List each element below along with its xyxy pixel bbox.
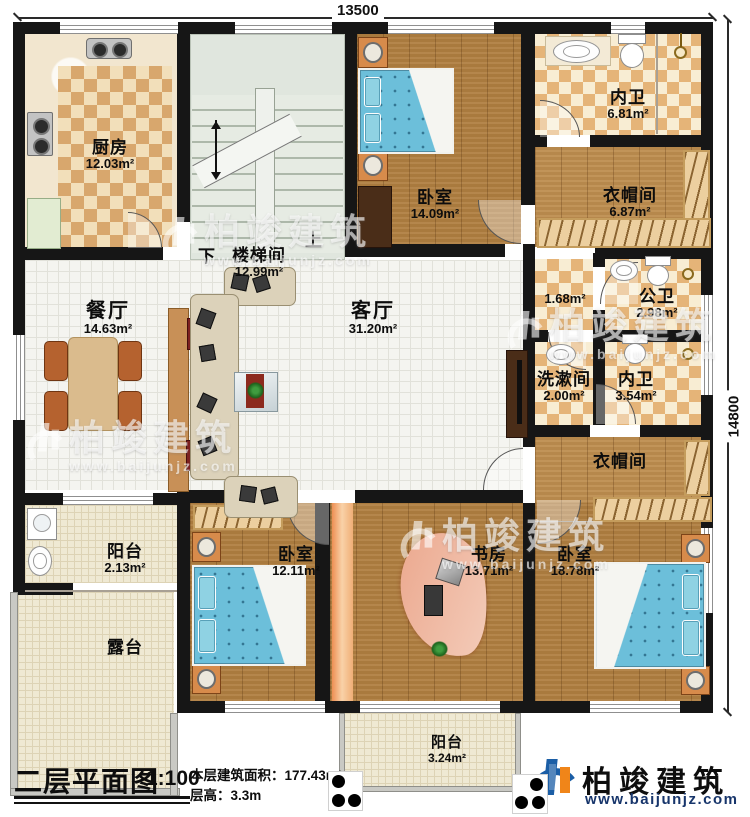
room-label-balcony-bottom: 阳台 3.24m² <box>428 735 466 765</box>
window <box>60 22 178 34</box>
sink-icon <box>610 260 638 281</box>
wall-segment <box>153 493 190 505</box>
dimension-line-right <box>727 20 729 713</box>
shower-icon <box>682 348 694 360</box>
balcony-terrace-separator <box>25 590 177 592</box>
bed-sheet-fold <box>404 70 452 152</box>
sink-icon <box>546 344 576 365</box>
stair-stringer <box>255 88 275 256</box>
window <box>701 295 713 395</box>
double-bed <box>594 562 706 669</box>
floor-area-row: 本层建筑面积：177.43m² <box>190 764 342 784</box>
dining-chair <box>118 391 142 431</box>
burner-icon <box>92 42 108 58</box>
window <box>590 701 680 713</box>
wall-segment <box>640 425 713 437</box>
room-label-bedroom-right: 卧室 18.78m² <box>551 545 599 579</box>
shower-cord <box>680 33 682 47</box>
room-label-bedroom-left: 卧室 12.11m² <box>272 545 320 579</box>
wall-segment <box>521 34 535 205</box>
wall-segment <box>13 22 25 595</box>
wall-segment <box>523 330 548 342</box>
plan-title: 二层平面图 <box>14 760 159 800</box>
burner-icon <box>33 138 50 155</box>
nightstand-lamp-icon <box>192 532 221 562</box>
floor-height-row: 层高：3.3m <box>190 784 261 804</box>
room-label-kitchen: 厨房 12.03m² <box>86 138 134 172</box>
toilet-icon <box>622 334 648 364</box>
room-label-cloak-top: 衣帽间 6.87m² <box>603 186 657 220</box>
stair-arrow-head-up <box>211 116 221 129</box>
sink-icon <box>553 40 600 63</box>
nightstand-lamp-icon <box>358 150 388 181</box>
computer-monitor-icon <box>424 585 443 616</box>
toilet-icon <box>645 256 671 286</box>
room-label-cloak-mid: 衣帽间 <box>593 452 647 471</box>
room-label-terrace: 露台 <box>107 638 143 657</box>
sofa-section <box>224 476 298 518</box>
burner-icon <box>33 118 50 135</box>
room-label-hall: 1.68m² <box>544 292 585 307</box>
window <box>225 701 325 713</box>
dining-chair <box>44 391 68 431</box>
wall-segment <box>13 493 63 505</box>
pillow <box>198 619 216 653</box>
plant-icon <box>431 641 448 657</box>
nightstand-lamp-icon <box>681 534 710 563</box>
pillow <box>198 576 216 610</box>
burner-icon <box>112 42 128 58</box>
window <box>611 22 645 34</box>
balcony-parapet <box>339 786 521 792</box>
tv-cabinet <box>358 186 392 248</box>
wall-segment <box>345 34 357 256</box>
nightstand-lamp-icon <box>358 37 388 68</box>
bed-sheet-fold <box>596 564 652 667</box>
bed-sheet-fold <box>247 567 304 664</box>
washer-drum-icon <box>33 514 51 532</box>
pillow <box>364 113 381 143</box>
pillow <box>364 77 381 107</box>
shower-icon <box>674 46 687 59</box>
wall-segment <box>523 425 590 437</box>
wall-segment <box>590 135 713 147</box>
room-label-dining: 餐厅 14.63m² <box>84 300 132 337</box>
double-bed <box>192 565 306 666</box>
toilet-icon <box>618 34 646 68</box>
dining-chair <box>44 341 68 381</box>
room-label-balcony-left: 阳台 2.13m² <box>104 542 145 576</box>
window <box>388 22 494 34</box>
laundry-sink-icon <box>28 546 52 576</box>
stair-arrow-head-down <box>211 172 221 185</box>
wall-segment <box>523 503 535 701</box>
stamp-marker <box>512 774 548 814</box>
title-underline <box>14 796 190 799</box>
window <box>360 701 500 713</box>
dining-table <box>68 337 118 431</box>
nightstand-lamp-icon <box>192 664 221 694</box>
room-label-bath-mid: 内卫 3.54m² <box>615 370 656 404</box>
wardrobe <box>537 218 711 248</box>
double-bed <box>358 68 454 154</box>
room-label-public-bath: 公卫 2.98m² <box>636 287 677 321</box>
stamp-marker <box>328 771 363 811</box>
room-label-study: 书房 13.71m² <box>465 545 513 579</box>
stair-up-label: 上 <box>305 231 323 250</box>
floor-plan: 厨房 12.03m² 楼梯间 12.99m² 下 上 卧室 14.09m² 内卫… <box>0 0 750 817</box>
cushion <box>199 344 217 362</box>
room-label-stairwell: 楼梯间 12.99m² <box>232 246 286 280</box>
dimension-height: 14800 <box>725 391 742 443</box>
terrace-floor <box>18 592 174 788</box>
plant-icon <box>247 382 264 399</box>
shower-icon <box>682 268 694 280</box>
tv-icon <box>517 360 522 424</box>
study-entry-runner <box>332 503 353 701</box>
wardrobe <box>684 440 710 496</box>
title-underline <box>14 802 190 804</box>
wall-segment <box>13 583 73 595</box>
dimension-width: 13500 <box>332 2 384 19</box>
room-label-bedroom-top: 卧室 14.09m² <box>411 188 459 222</box>
brand-url: www.baijunjz.com <box>585 791 738 808</box>
room-label-washroom: 洗漱间 2.00m² <box>537 370 591 404</box>
pillow <box>682 620 700 656</box>
wall-segment <box>355 490 523 503</box>
window <box>13 335 25 420</box>
room-label-living: 客厅 31.20m² <box>349 300 397 337</box>
wall-segment <box>593 253 605 267</box>
kitchen-counter <box>27 198 61 249</box>
cushion <box>239 485 257 503</box>
wardrobe <box>593 497 712 522</box>
wall-segment <box>177 22 190 222</box>
stair-down-label: 下 <box>198 247 216 266</box>
nightstand-lamp-icon <box>681 666 710 695</box>
room-label-bath-top: 内卫 6.81m² <box>607 88 648 122</box>
pillow <box>682 574 700 610</box>
dining-chair <box>118 341 142 381</box>
window <box>235 22 332 34</box>
wardrobe <box>683 150 710 222</box>
window <box>63 493 153 505</box>
shower-screen <box>656 34 658 134</box>
wall-segment <box>177 490 190 713</box>
